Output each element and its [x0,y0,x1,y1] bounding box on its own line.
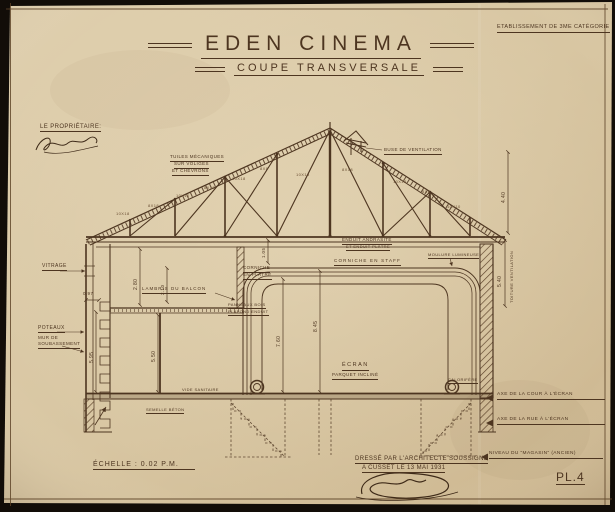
dim-balcony-clear: 2.10 [161,285,166,295]
screen-label: ÉCRAN [342,363,369,371]
dim-vent-label: Toiture Ventilation [510,251,514,303]
truss-mark: 8x18 [148,204,159,208]
subtitle-rule-right [433,67,463,72]
right-pillar [478,244,496,432]
archival-drawing-photo: Etablissement de 3me Catégorie EDEN CINE… [0,0,615,512]
subtitle-block: COUPE TRANSVERSALE [195,62,463,76]
ventilation-label: Buse de Ventilation [384,148,442,155]
footing-label: Semelle Béton [146,408,184,414]
dim-ceiling-drop: 1.05 [262,248,267,258]
title-block: EDEN CINEMA [148,32,474,59]
truss-mark: 10x18 [232,177,246,181]
dim-right-top: 4.40 [502,192,507,203]
glazing-label: Vitrage [42,264,67,271]
paper-sheet [4,2,612,505]
dim-vent-height: 5.40 [498,276,503,287]
truss-mark: 8x18 [342,168,353,172]
store-level-label: Niveau du "Magasin" (ancien) [489,452,603,459]
dim-gallery-height: 5.50 [152,351,157,362]
roof-tiles-label-3: et chevrons [172,169,209,176]
void-label: Vide Sanitaire [182,388,219,392]
dim-stair-height: 5.95 [90,352,95,363]
title-rule-left [148,43,192,48]
basement-wall-label-2: Soubassement [38,342,80,349]
truss-mark: 8x8 [422,190,430,194]
dim-wall-offset: 0.97 [83,292,93,297]
plaster-label-2: et enduit plâtre [346,245,390,251]
truss-mark: 10x10 [176,194,190,198]
truss-mark: 10x10 [447,205,461,209]
plate-number: PL.4 [556,471,585,485]
subtitle-rule-left [195,67,225,72]
cornice-label: Corniche en staff [334,259,401,266]
sloped-floor-label: Parquet incliné [332,373,378,380]
title-rule-right [430,43,474,48]
axis-court-label: Axe de la Cour à l'Écran [497,393,605,400]
page-subtitle: COUPE TRANSVERSALE [234,62,424,76]
plaster-ceiling-label: Plafond enduit [228,310,269,316]
basement-wall-label-1: Mur de [38,336,58,341]
blueprint-linework [0,0,615,512]
axis-street-label: Axe de la Rue à l'Écran [497,418,605,425]
truss-mark: 8x18 [204,186,215,190]
truss-mark: 8x8 [260,167,268,171]
light-moulding-label: Moulure Lumineuse [428,253,479,259]
truss-mark: 10x18 [393,180,407,184]
cornice-left-label-2: en plâtre [243,273,272,280]
dim-cove-height: 7.60 [277,336,282,347]
drafted-label-1: Dressé par l'Architecte soussigné [355,456,488,464]
dim-balcony-height: 2.80 [134,279,139,290]
heater-label: Calorifère [448,378,478,384]
dim-hall-height: 8.45 [314,321,319,332]
drafted-label-2: A Cusset le 13 Mai 1931 [362,465,445,473]
classification-note: Etablissement de 3me Catégorie [497,25,610,33]
page-title: EDEN CINEMA [201,32,421,59]
floor [86,394,493,400]
balcony-panel-label: Lambris du Balcon [142,287,206,294]
proprietor-label: Le Propriétaire: [40,124,101,132]
posts-label: Poteaux [38,326,65,333]
truss-mark: 10x18 [116,212,130,216]
truss-mark: 10x18 [296,173,310,177]
scale-label: ÉCHELLE : 0.02 P.M. [93,461,195,470]
